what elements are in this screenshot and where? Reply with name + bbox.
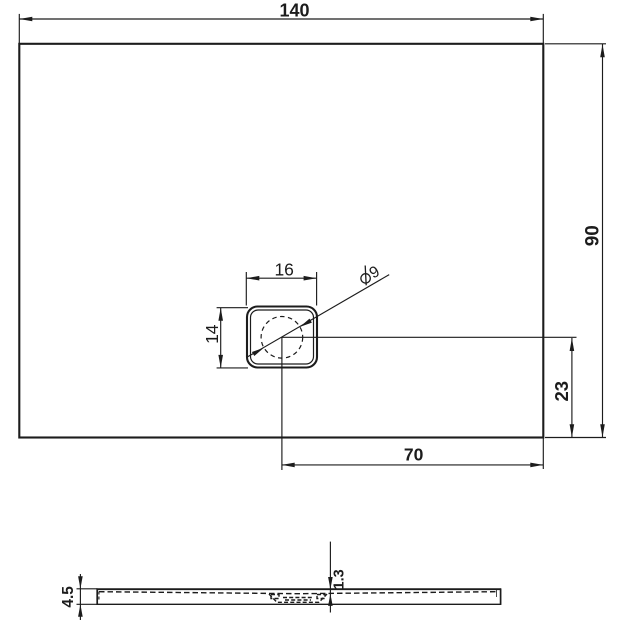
svg-text:23: 23 [551,381,572,402]
svg-text:70: 70 [404,445,424,465]
svg-text:14: 14 [202,324,222,344]
svg-text:140: 140 [279,1,309,21]
svg-text:16: 16 [274,260,293,280]
svg-text:90: 90 [582,225,603,246]
svg-text:4.5: 4.5 [60,586,77,608]
svg-text:1.3: 1.3 [332,569,348,589]
